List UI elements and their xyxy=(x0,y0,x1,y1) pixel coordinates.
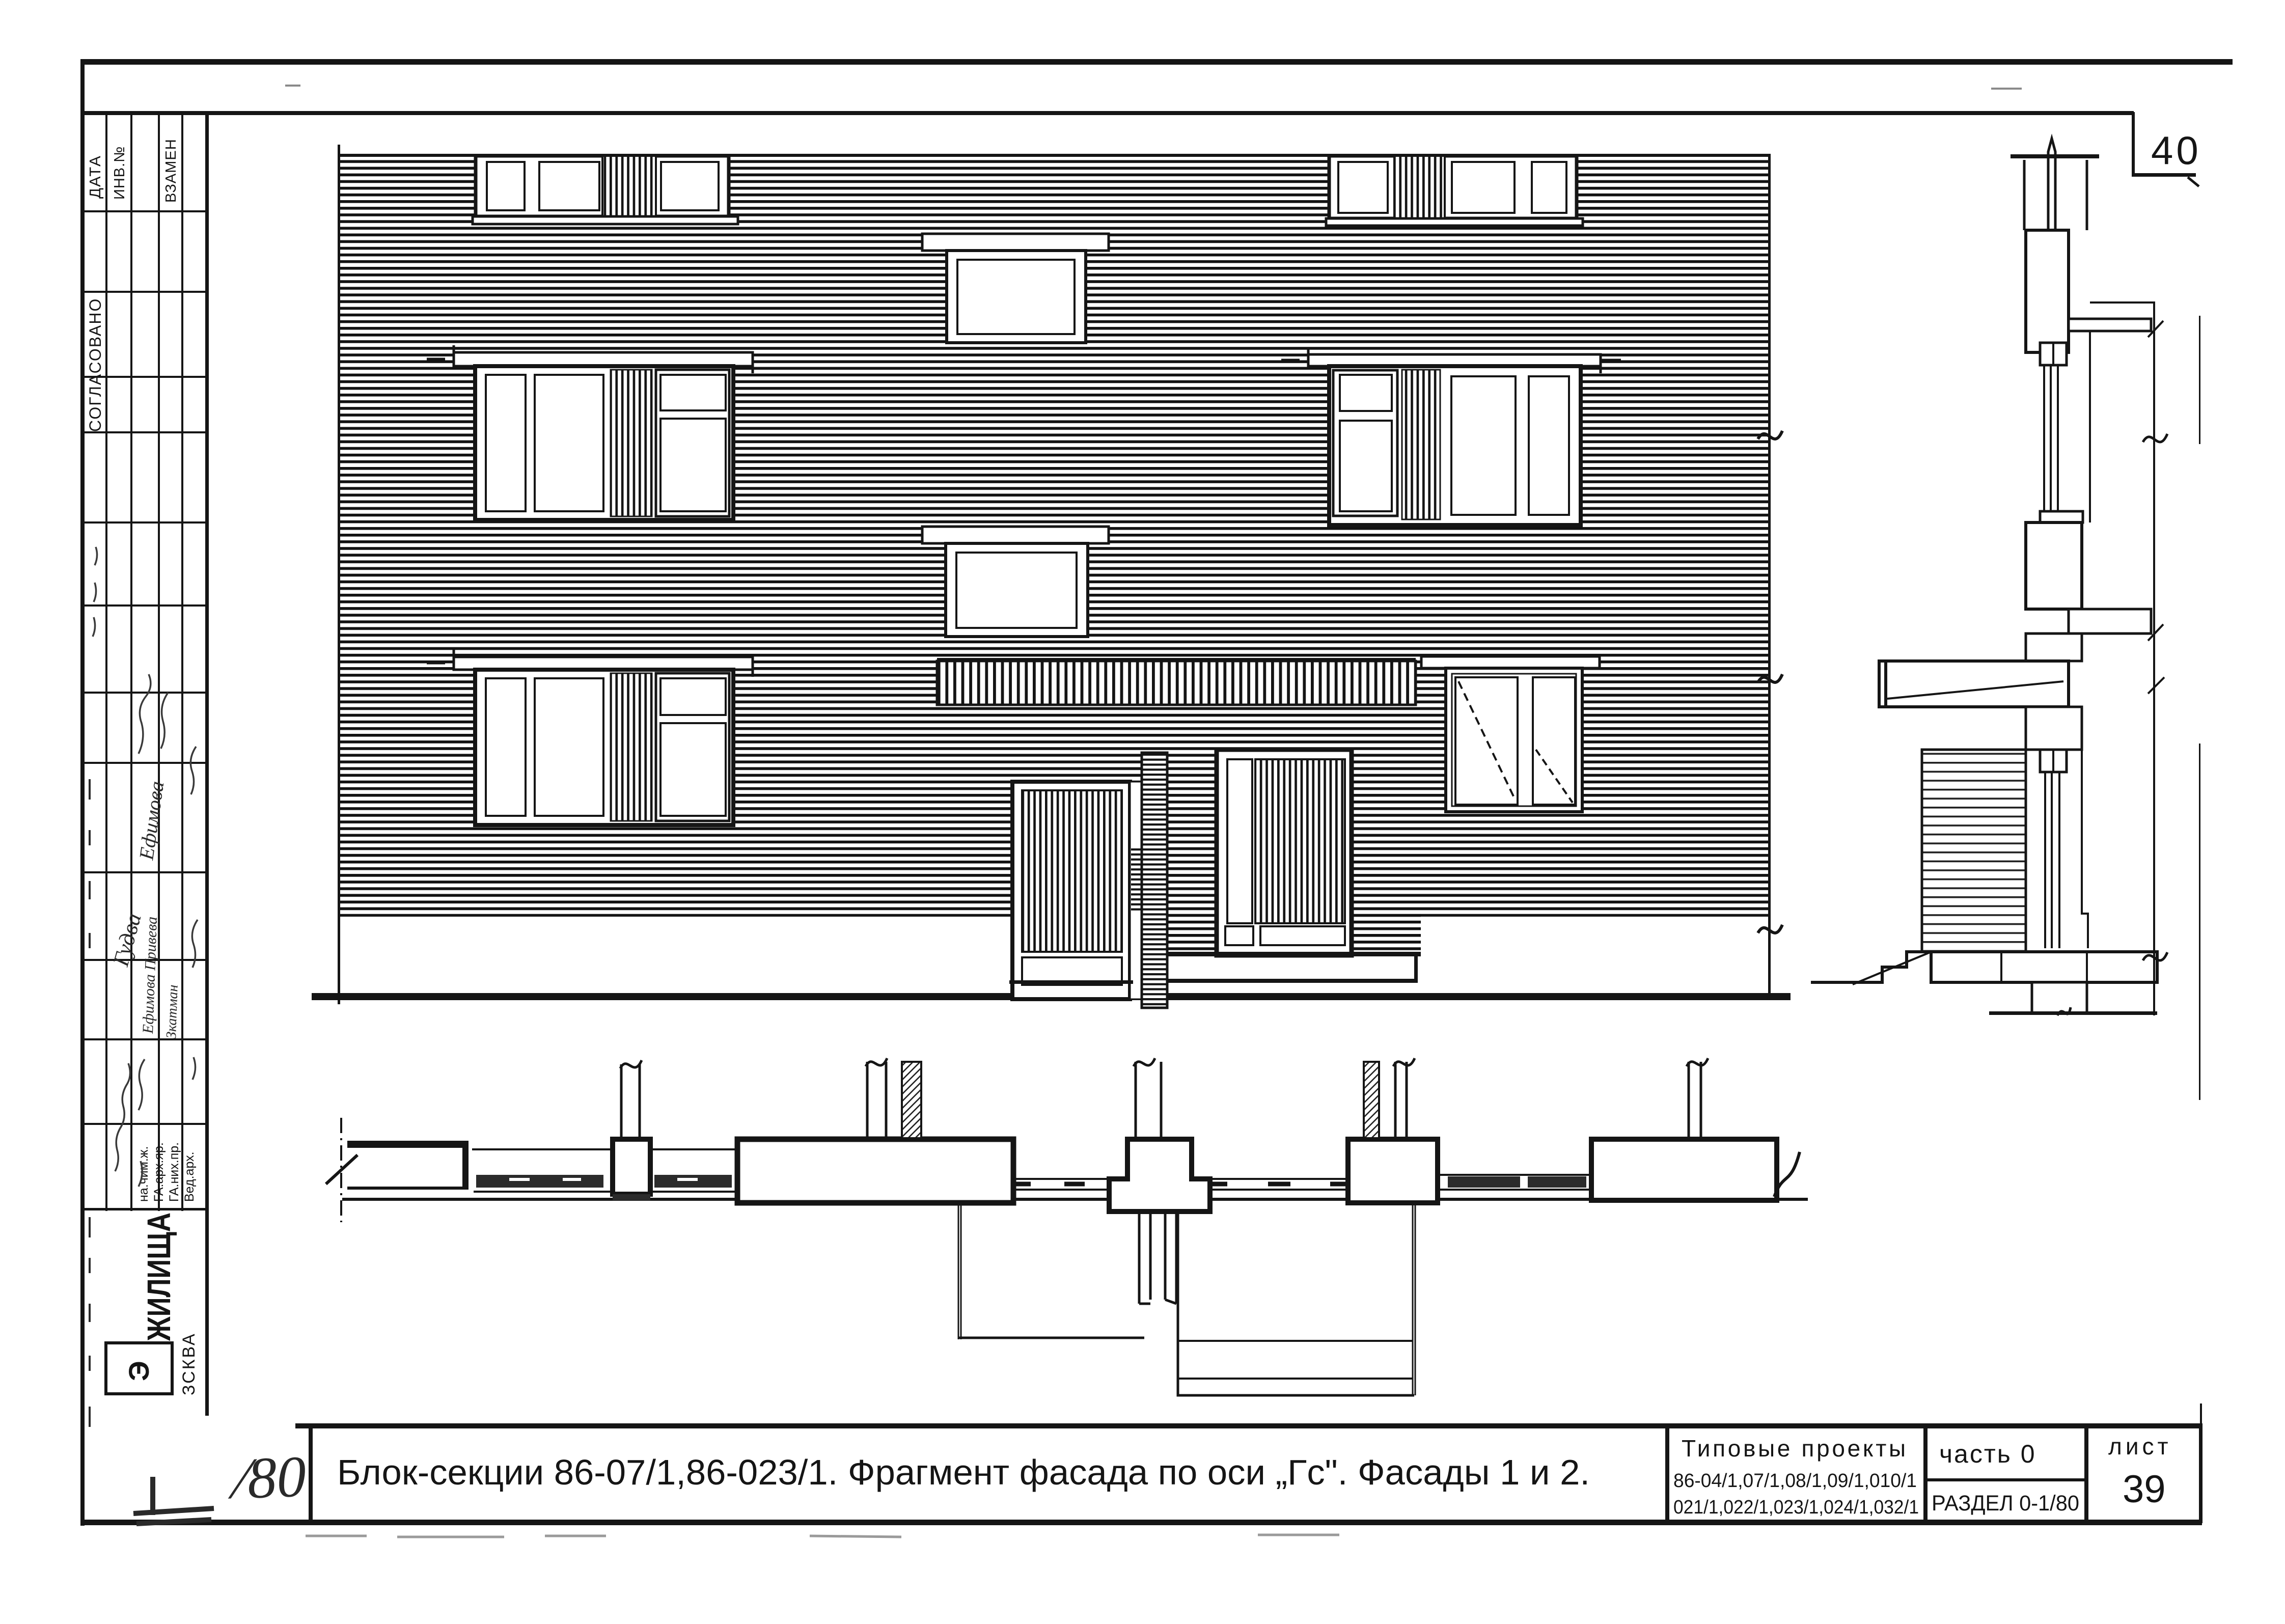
svg-text:021/1,022/1,023/1,024/1,032/1: 021/1,022/1,023/1,024/1,032/1 xyxy=(1673,1497,1919,1518)
svg-text:на.чим.ж.: на.чим.ж. xyxy=(136,1146,151,1202)
svg-text:Блок-секции 86-07/1,86-023/1.: Блок-секции 86-07/1,86-023/1. Фрагмент ф… xyxy=(337,1452,1590,1492)
svg-text:Зкатман: Зкатман xyxy=(163,984,181,1039)
svg-text:39: 39 xyxy=(2123,1468,2166,1511)
svg-text:86-04/1,07/1,08/1,09/1,010/1: 86-04/1,07/1,08/1,09/1,010/1 xyxy=(1673,1470,1917,1492)
svg-text:40: 40 xyxy=(2151,128,2201,173)
svg-text:Вед.арх.: Вед.арх. xyxy=(182,1151,197,1202)
svg-text:ДАТА: ДАТА xyxy=(86,155,104,199)
svg-text:ЖИЛИЩА: ЖИЛИЩА xyxy=(141,1213,177,1341)
svg-text:лист: лист xyxy=(2108,1433,2172,1460)
svg-text:ГА.арх.яр.: ГА.арх.яр. xyxy=(152,1142,166,1202)
svg-text:ГА.них.пр.: ГА.них.пр. xyxy=(167,1142,181,1202)
svg-text:ИНВ.№: ИНВ.№ xyxy=(112,146,128,200)
svg-text:часть 0: часть 0 xyxy=(1939,1440,2036,1468)
svg-text:ВЗАМЕН: ВЗАМЕН xyxy=(163,139,179,203)
svg-text:Э: Э xyxy=(123,1361,155,1381)
svg-text:РАЗДЕЛ 0-1/80: РАЗДЕЛ 0-1/80 xyxy=(1932,1491,2079,1516)
svg-text:⁄80: ⁄80 xyxy=(226,1444,307,1511)
svg-text:Типовые проекты: Типовые проекты xyxy=(1682,1435,1906,1462)
svg-text:СОГЛАСОВАНО: СОГЛАСОВАНО xyxy=(86,298,104,432)
svg-text:ЗСКВА: ЗСКВА xyxy=(179,1332,199,1395)
